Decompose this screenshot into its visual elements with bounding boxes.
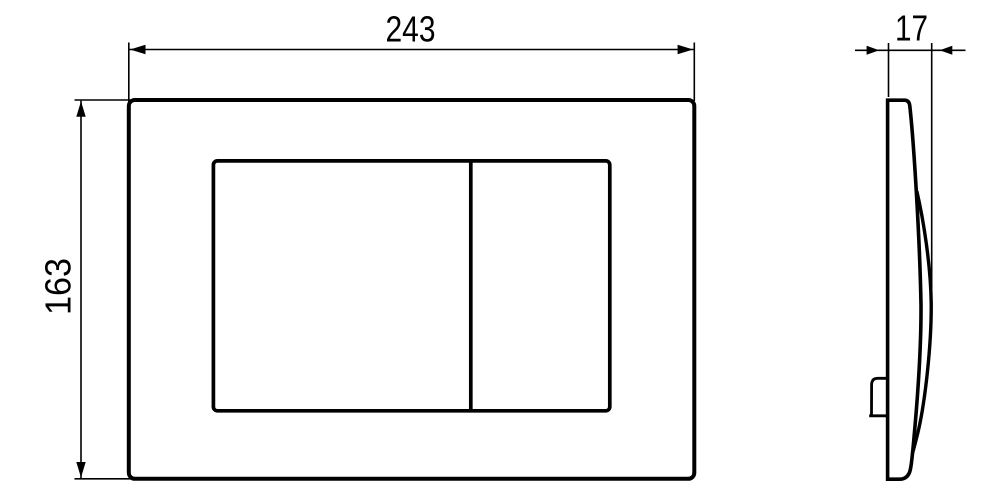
svg-text:243: 243 [386, 9, 436, 50]
svg-text:17: 17 [895, 8, 928, 49]
svg-text:163: 163 [38, 258, 79, 315]
